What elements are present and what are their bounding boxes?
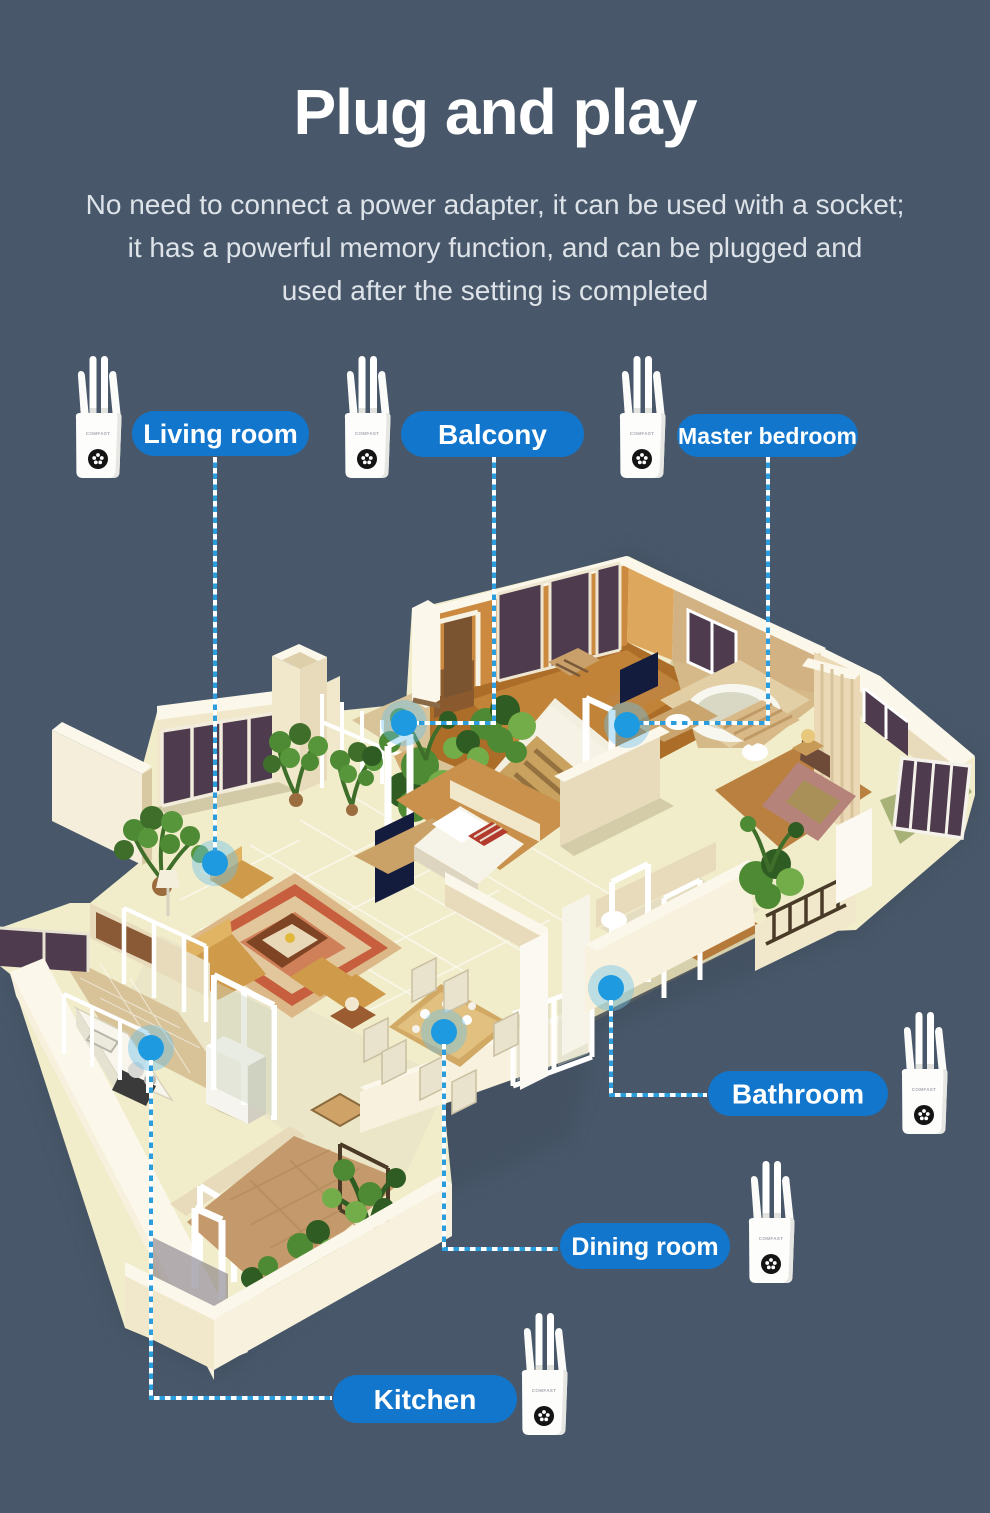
svg-text:Balcony: Balcony (438, 419, 547, 450)
svg-text:Living room: Living room (143, 419, 298, 449)
svg-text:Bathroom: Bathroom (732, 1079, 864, 1110)
svg-text:Dining room: Dining room (571, 1233, 718, 1261)
svg-text:Kitchen: Kitchen (374, 1384, 477, 1415)
svg-text:Master bedroom: Master bedroom (678, 423, 857, 449)
